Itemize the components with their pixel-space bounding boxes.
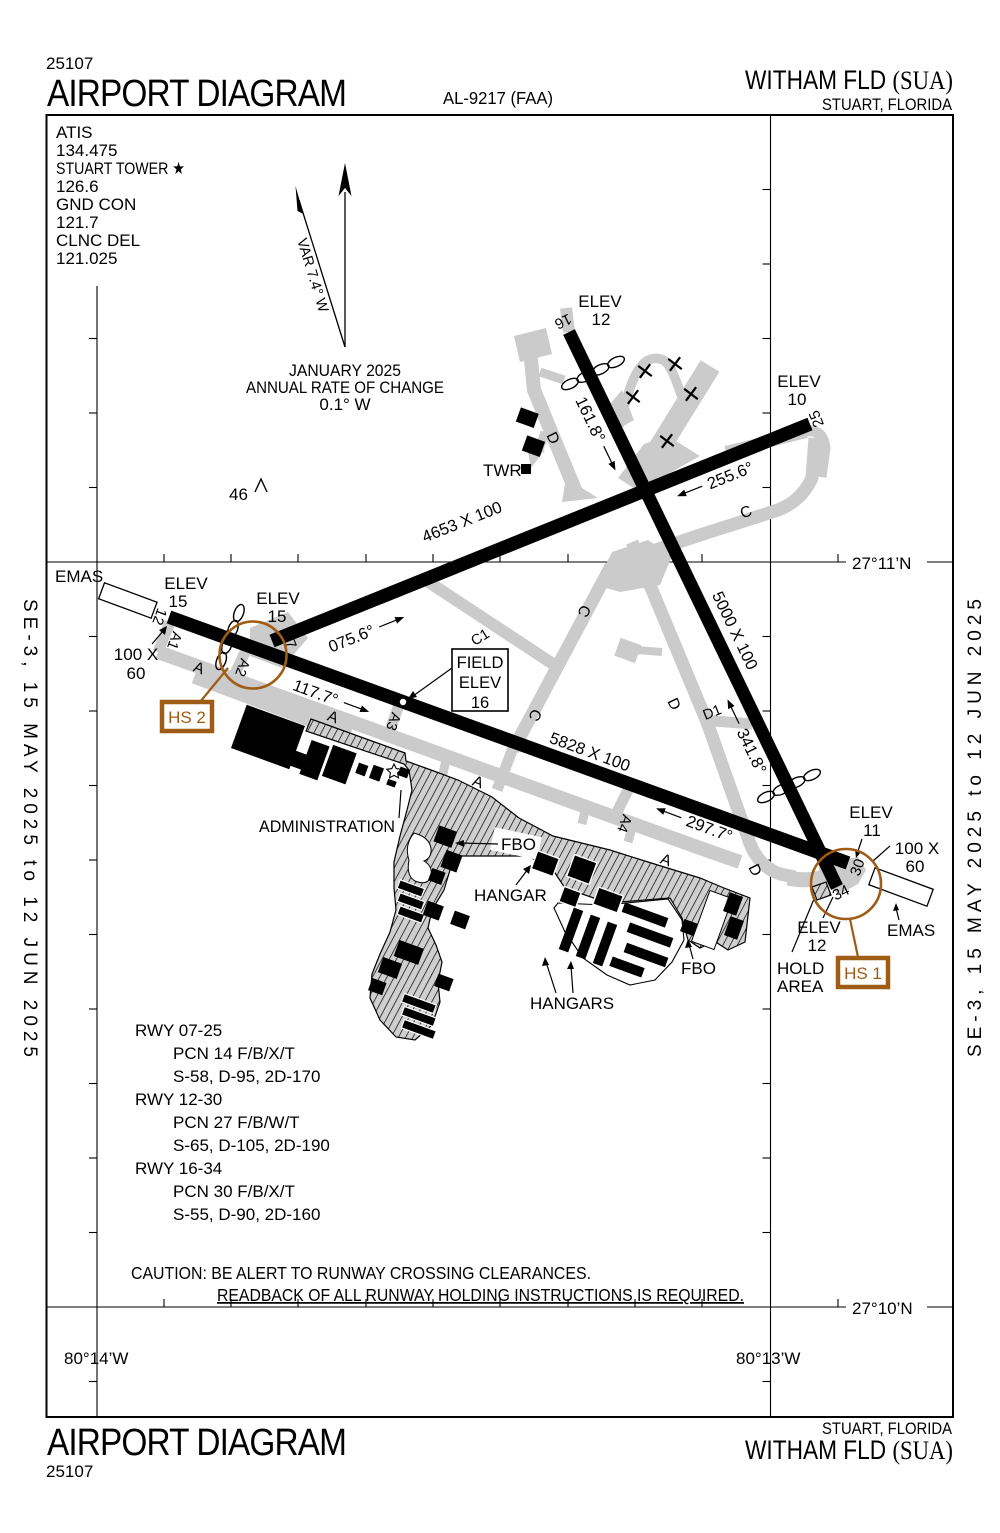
svg-text:EMAS: EMAS [887,921,935,940]
svg-text:60: 60 [127,664,146,683]
svg-text:ELEV: ELEV [256,589,300,608]
svg-text:WITHAM FLD (SUA): WITHAM FLD (SUA) [745,1435,953,1465]
svg-text:25107: 25107 [46,54,93,73]
svg-text:ELEV: ELEV [164,574,208,593]
svg-text:126.6: 126.6 [56,177,99,196]
svg-text:12: 12 [808,936,827,955]
svg-text:EMAS: EMAS [55,567,103,586]
svg-text:STUART, FLORIDA: STUART, FLORIDA [822,95,953,114]
svg-text:12: 12 [592,310,611,329]
svg-text:15: 15 [268,607,287,626]
svg-text:READBACK OF ALL RUNWAY HOLDING: READBACK OF ALL RUNWAY HOLDING INSTRUCTI… [217,1285,744,1305]
svg-text:100 X: 100 X [114,645,158,664]
svg-text:80°14’W: 80°14’W [64,1349,128,1368]
svg-text:RWY 07-25: RWY 07-25 [135,1021,222,1040]
svg-text:100 X: 100 X [895,839,939,858]
svg-text:HANGARS: HANGARS [530,994,614,1013]
svg-text:HS 2: HS 2 [168,708,206,727]
svg-text:HOLD: HOLD [777,959,824,978]
svg-text:PCN 27 F/B/W/T: PCN 27 F/B/W/T [173,1113,300,1132]
svg-text:ADMINISTRATION: ADMINISTRATION [259,817,395,836]
svg-text:60: 60 [906,857,925,876]
svg-text:134.475: 134.475 [56,141,117,160]
svg-text:80°13’W: 80°13’W [736,1349,800,1368]
svg-text:S-55, D-90, 2D-160: S-55, D-90, 2D-160 [173,1205,320,1224]
svg-text:PCN 30 F/B/X/T: PCN 30 F/B/X/T [173,1182,295,1201]
svg-text:25107: 25107 [46,1462,93,1481]
svg-text:ATIS: ATIS [56,123,93,142]
svg-text:ELEV: ELEV [849,803,893,822]
svg-text:S-65, D-105, 2D-190: S-65, D-105, 2D-190 [173,1136,330,1155]
svg-text:121.025: 121.025 [56,249,117,268]
svg-text:10: 10 [788,390,807,409]
svg-text:PCN 14 F/B/X/T: PCN 14 F/B/X/T [173,1044,295,1063]
svg-text:TWR: TWR [483,461,522,480]
svg-text:CLNC DEL: CLNC DEL [56,231,140,250]
svg-text:RWY 16-34: RWY 16-34 [135,1159,222,1178]
svg-text:AREA: AREA [777,977,824,996]
svg-text:ELEV: ELEV [578,292,622,311]
svg-text:STUART TOWER ★: STUART TOWER ★ [56,159,185,178]
svg-text:ELEV: ELEV [459,674,501,692]
svg-text:11: 11 [863,821,881,840]
svg-text:16: 16 [471,694,489,712]
svg-text:AIRPORT DIAGRAM: AIRPORT DIAGRAM [47,1422,346,1464]
svg-text:WITHAM FLD (SUA): WITHAM FLD (SUA) [745,65,953,95]
svg-text:AIRPORT DIAGRAM: AIRPORT DIAGRAM [47,73,346,115]
svg-text:AL-9217 (FAA): AL-9217 (FAA) [443,88,553,108]
svg-text:0.1° W: 0.1° W [319,395,370,414]
svg-text:S-58, D-95, 2D-170: S-58, D-95, 2D-170 [173,1067,320,1086]
svg-text:46: 46 [229,485,248,504]
svg-text:27°11’N: 27°11’N [852,554,911,573]
svg-text:CAUTION: BE ALERT TO RUNWAY CR: CAUTION: BE ALERT TO RUNWAY CROSSING CLE… [131,1263,591,1283]
svg-text:27°10’N: 27°10’N [852,1299,913,1318]
svg-text:FBO: FBO [501,835,536,854]
svg-text:GND CON: GND CON [56,195,136,214]
svg-text:RWY 12-30: RWY 12-30 [135,1090,222,1109]
svg-text:ELEV: ELEV [777,372,821,391]
svg-text:HANGAR: HANGAR [474,886,547,905]
svg-text:121.7: 121.7 [56,213,99,232]
svg-text:HS 1: HS 1 [844,964,882,983]
svg-text:FIELD: FIELD [457,654,504,672]
svg-text:15: 15 [169,592,188,611]
svg-text:FBO: FBO [681,959,716,978]
svg-text:ELEV: ELEV [797,918,841,937]
